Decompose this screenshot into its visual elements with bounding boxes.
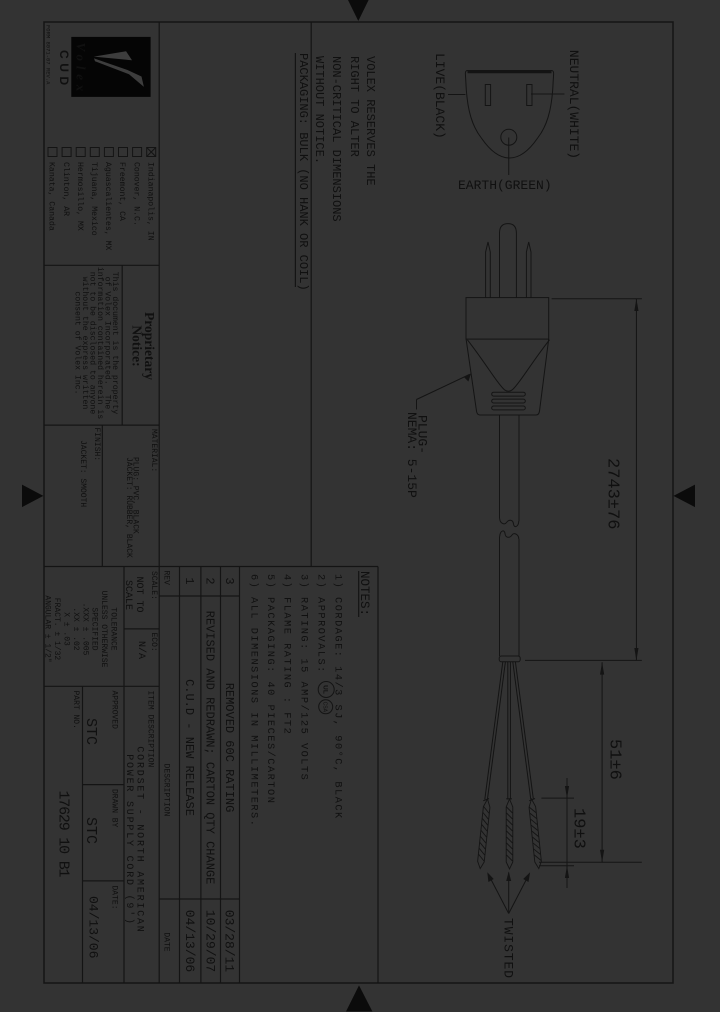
svg-text:Hermosillo, MX: Hermosillo, MX <box>75 162 85 231</box>
svg-text:N/A: N/A <box>135 641 147 659</box>
svg-text:STC: STC <box>82 817 99 844</box>
svg-text:FINISH:: FINISH: <box>92 428 101 462</box>
svg-text:Volex: Volex <box>74 43 89 97</box>
svg-text:POWER SUPPLY CORD (9'): POWER SUPPLY CORD (9') <box>123 754 135 926</box>
svg-text:SPECIFIED: SPECIFIED <box>90 607 99 650</box>
svg-text:JACKET: RUBBER, BLACK: JACKET: RUBBER, BLACK <box>124 457 133 558</box>
svg-text:Tijuana, Mexico: Tijuana, Mexico <box>89 162 99 236</box>
svg-text:NEMA: 5-15P: NEMA: 5-15P <box>404 412 419 498</box>
svg-text:STC: STC <box>82 718 99 745</box>
svg-text:2: 2 <box>203 577 217 584</box>
svg-text:LIVE(BLACK): LIVE(BLACK) <box>432 53 447 139</box>
svg-text:REV: REV <box>162 571 171 586</box>
svg-text:04/13/06: 04/13/06 <box>182 910 197 972</box>
svg-text:5) PACKAGING: 40 PIECES/CARTON: 5) PACKAGING: 40 PIECES/CARTON <box>264 574 276 804</box>
svg-text:MATERIAL:: MATERIAL: <box>149 429 158 472</box>
svg-text:ECO:: ECO: <box>149 633 158 652</box>
svg-text:consent of Volex Inc.: consent of Volex Inc. <box>73 291 83 394</box>
svg-text:3) RATING: 15 AMP/125 VOLTS: 3) RATING: 15 AMP/125 VOLTS <box>298 574 310 781</box>
svg-text:NEUTRAL(WHITE): NEUTRAL(WHITE) <box>566 50 581 159</box>
svg-text:Notice:: Notice: <box>130 325 145 366</box>
svg-text:10/29/07: 10/29/07 <box>202 910 217 972</box>
svg-text:19±3: 19±3 <box>569 808 588 849</box>
svg-text:CORDSET - NORTH AMERICAN: CORDSET - NORTH AMERICAN <box>134 746 145 933</box>
svg-text:Clinton, AR: Clinton, AR <box>61 162 71 216</box>
svg-text:PACKAGING: BULK (NO HANK OR CO: PACKAGING: BULK (NO HANK OR COIL) <box>296 53 310 291</box>
svg-text:UNLESS OTHERWISE: UNLESS OTHERWISE <box>99 591 108 668</box>
svg-text:RIGHT TO ALTER: RIGHT TO ALTER <box>347 56 361 157</box>
svg-text:1) CORDAGE: 14/3 SJ, 90°C, BLA: 1) CORDAGE: 14/3 SJ, 90°C, BLACK <box>331 574 343 820</box>
svg-text:DESCRIPTION: DESCRIPTION <box>162 764 171 817</box>
svg-text:ANGULAR ± 1/2": ANGULAR ± 1/2" <box>43 595 52 662</box>
svg-text:CUD: CUD <box>57 50 71 90</box>
svg-text:TWISTED: TWISTED <box>501 918 516 979</box>
svg-text:PART NO.: PART NO. <box>71 691 80 729</box>
svg-text:REVISED AND REDRAWN; CARTON QT: REVISED AND REDRAWN; CARTON QTY CHANGE <box>203 611 217 885</box>
svg-text:Aguascalientes, MX: Aguascalientes, MX <box>103 162 113 251</box>
svg-text:NON-CRITICAL DIMENSIONS: NON-CRITICAL DIMENSIONS <box>329 56 343 222</box>
svg-text:3: 3 <box>222 577 236 584</box>
svg-text:JACKET: SMOOTH: JACKET: SMOOTH <box>78 440 87 507</box>
svg-text:.XX ± .02: .XX ± .02 <box>71 607 80 650</box>
svg-text:X ± .03: X ± .03 <box>62 612 71 646</box>
svg-text:DATE:: DATE: <box>110 886 119 910</box>
svg-text:4) FLAME RATING : FT2: 4) FLAME RATING : FT2 <box>281 574 293 735</box>
svg-text:NOT TO: NOT TO <box>133 577 144 613</box>
svg-text:Freemont, CA: Freemont, CA <box>117 162 126 221</box>
svg-text:SCALE: SCALE <box>122 580 133 610</box>
svg-text:04/13/06: 04/13/06 <box>86 896 101 958</box>
svg-text:WITHOUT NOTICE.: WITHOUT NOTICE. <box>312 56 326 164</box>
svg-text:UL: UL <box>322 685 329 694</box>
svg-text:2743±76: 2743±76 <box>603 458 622 529</box>
svg-text:REMOVED 60C RATING: REMOVED 60C RATING <box>222 683 236 813</box>
svg-text:03/28/11: 03/28/11 <box>222 910 237 973</box>
svg-text:DATE: DATE <box>162 932 171 951</box>
svg-text:Kanata, Canada: Kanata, Canada <box>47 162 57 231</box>
svg-text:CSA: CSA <box>321 702 327 713</box>
svg-text:17629 10 B1: 17629 10 B1 <box>55 791 72 878</box>
svg-text:VOLEX RESERVES THE: VOLEX RESERVES THE <box>363 56 377 186</box>
svg-text:NOTES:: NOTES: <box>357 571 371 616</box>
svg-text:2) APPROVALS:: 2) APPROVALS: <box>315 574 327 674</box>
svg-text:SCALE:: SCALE: <box>149 571 158 600</box>
svg-text:FRACT. ± 1/32: FRACT. ± 1/32 <box>52 598 61 661</box>
svg-text:DRAWN BY: DRAWN BY <box>110 789 119 828</box>
svg-text:FORM 8071-07 REV.A: FORM 8071-07 REV.A <box>45 25 52 85</box>
svg-text:C.U.D - NEW RELEASE: C.U.D - NEW RELEASE <box>182 679 196 816</box>
svg-text:APPROVED: APPROVED <box>110 691 119 730</box>
svg-text:ITEM DESCRIPTION: ITEM DESCRIPTION <box>146 691 155 768</box>
svg-text:51±6: 51±6 <box>605 739 624 780</box>
svg-text:1: 1 <box>182 577 196 584</box>
svg-text:.XXX ± .005: .XXX ± .005 <box>80 603 89 656</box>
svg-text:Conover, N.C.: Conover, N.C. <box>131 162 140 226</box>
svg-text:EARTH(GREEN): EARTH(GREEN) <box>458 178 552 193</box>
svg-text:TOLERANCE: TOLERANCE <box>109 607 118 650</box>
svg-text:6) ALL DIMENSIONS IN MILLIMETE: 6) ALL DIMENSIONS IN MILLIMETERS. <box>247 574 259 827</box>
svg-text:Indianapolis, IN: Indianapolis, IN <box>145 162 155 241</box>
